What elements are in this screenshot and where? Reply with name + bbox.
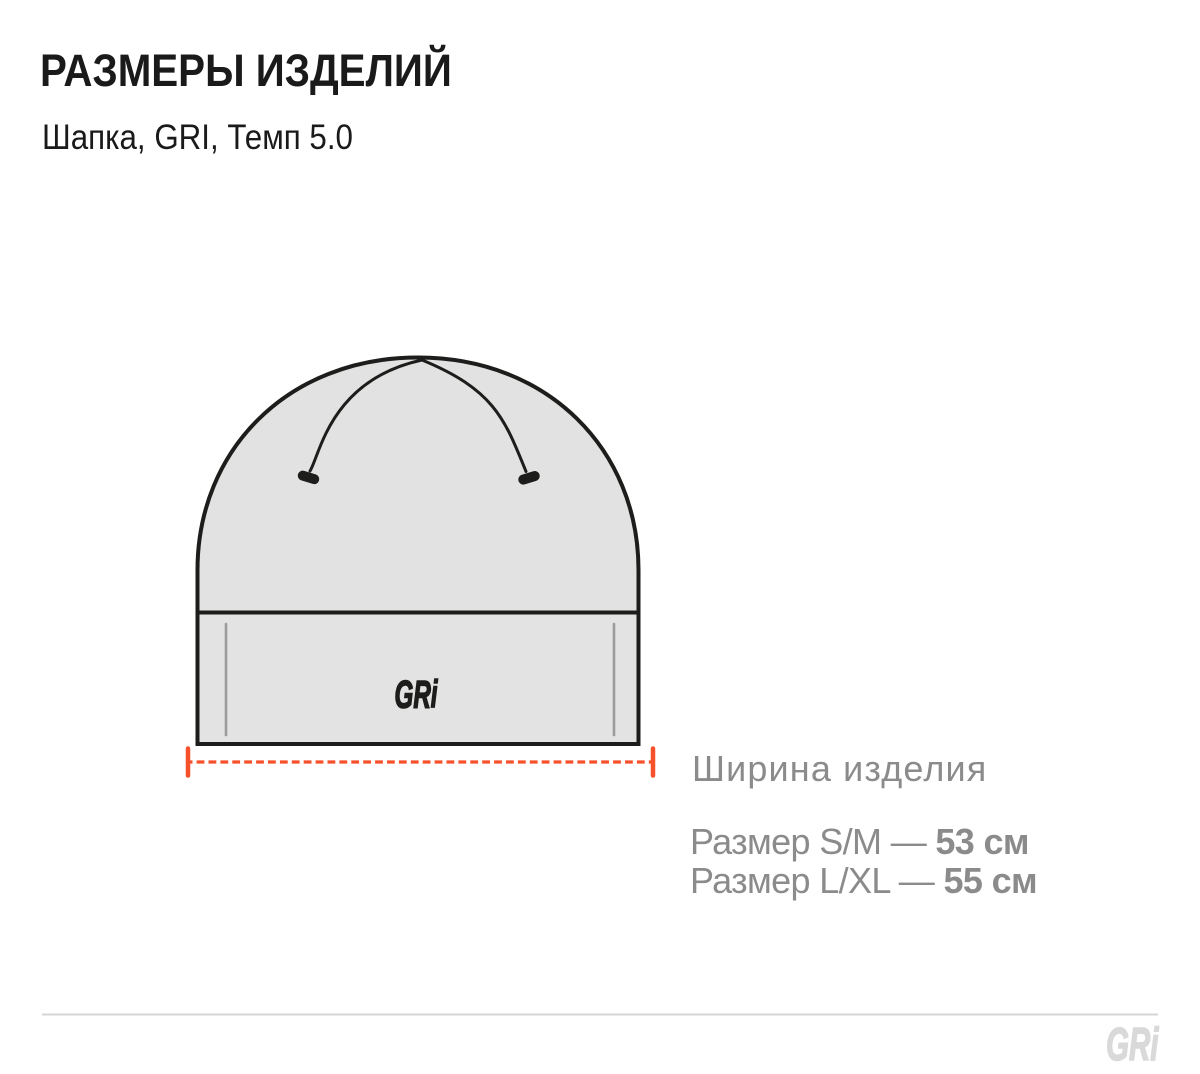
svg-text:GRi: GRi [1106,1020,1159,1071]
svg-text:GRi: GRi [395,673,439,716]
